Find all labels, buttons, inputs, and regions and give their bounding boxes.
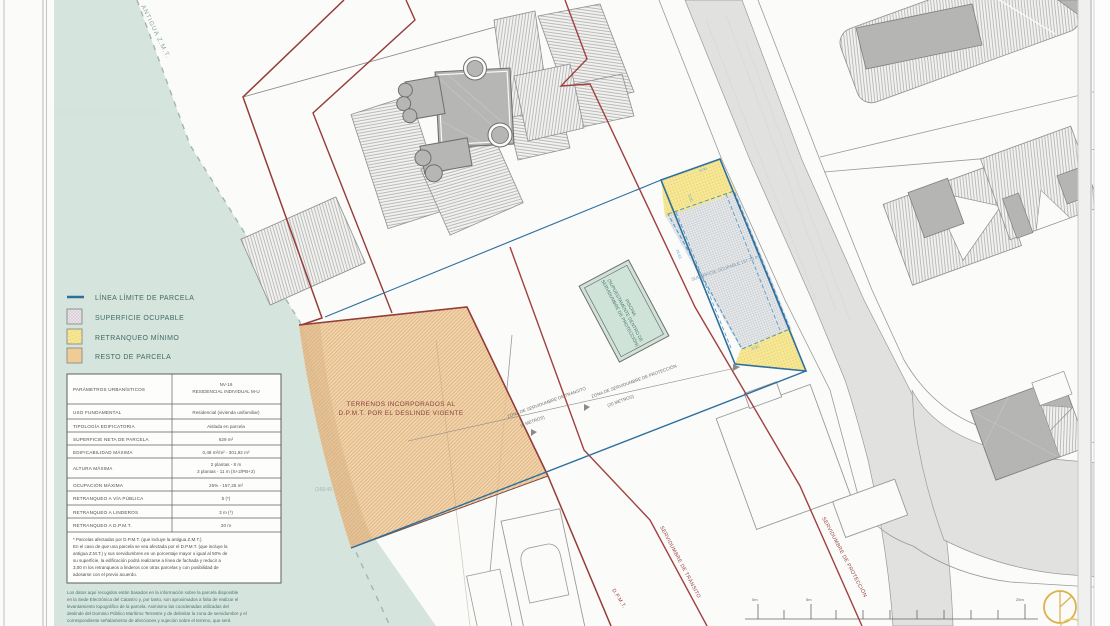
svg-text:D.P.M.T. POR EL DESLINDE VIGEN: D.P.M.T. POR EL DESLINDE VIGENTE [338, 410, 463, 417]
svg-text:Residencial (vivienda unifamil: Residencial (vivienda unifamiliar) [192, 410, 260, 415]
svg-text:levantamiento topográfico de l: levantamiento topográfico de la parcela.… [67, 604, 229, 609]
svg-text:EDIFICABILIDAD MÁXIMA: EDIFICABILIDAD MÁXIMA [73, 449, 133, 455]
svg-text:0m: 0m [752, 597, 758, 602]
svg-text:TERRENOS INCORPORADOS AL: TERRENOS INCORPORADOS AL [347, 401, 456, 408]
svg-text:5m: 5m [806, 597, 812, 602]
svg-text:Los datos aquí recogidos están: Los datos aquí recogidos están basados e… [67, 590, 239, 595]
svg-text:adosarse con el previo acuerdo: adosarse con el previo acuerdo. [73, 572, 137, 577]
svg-text:25m: 25m [1016, 597, 1024, 602]
svg-text:RESTO DE PARCELA: RESTO DE PARCELA [95, 354, 171, 361]
svg-text:USO FUNDAMENTAL: USO FUNDAMENTAL [73, 410, 122, 415]
svg-text:RETRANQUEO A D.P.M.T.: RETRANQUEO A D.P.M.T. [73, 523, 132, 528]
svg-text:RETRANQUEO A VÍA PÚBLICA: RETRANQUEO A VÍA PÚBLICA [73, 495, 144, 501]
svg-text:NV-16: NV-16 [220, 382, 233, 387]
svg-text:3,00 m los retranqueos a linde: 3,00 m los retranqueos a linderos con ot… [73, 565, 219, 570]
svg-text:RETRANQUEO MÍNIMO: RETRANQUEO MÍNIMO [95, 333, 179, 342]
svg-text:20 m: 20 m [221, 523, 231, 528]
svg-text:en la Sede Electrónica del Cat: en la Sede Electrónica del Catastro y, p… [67, 597, 238, 602]
svg-text:En el caso de que una parcela: En el caso de que una parcela se vea afe… [73, 544, 228, 549]
svg-text:ALTURA MÁXIMA: ALTURA MÁXIMA [73, 465, 113, 471]
svg-text:2 plantas - 8 m: 2 plantas - 8 m [211, 462, 242, 467]
svg-text:deslinde del Dominio Público M: deslinde del Dominio Público Marítimo Te… [67, 611, 247, 616]
svg-text:* Parcelas afectadas por D.P.M: * Parcelas afectadas por D.P.M.T. (que i… [73, 537, 202, 542]
svg-text:Aislada en parcela: Aislada en parcela [207, 424, 245, 429]
svg-text:RESIDENCIAL INDIVIDUAL M-U: RESIDENCIAL INDIVIDUAL M-U [192, 389, 259, 394]
svg-text:OCUPACIÓN MÁXIMA: OCUPACIÓN MÁXIMA [73, 482, 124, 488]
svg-text:5 (*): 5 (*) [222, 496, 231, 501]
svg-text:0,48 m²/m² - 301,92 m²: 0,48 m²/m² - 301,92 m² [203, 450, 250, 455]
svg-text:629 m²: 629 m² [219, 437, 234, 442]
svg-text:3 plantas - 11 m (S+2/PB+2): 3 plantas - 11 m (S+2/PB+2) [197, 469, 255, 474]
svg-text:su superficie, la edificación: su superficie, la edificación podrá real… [73, 558, 221, 563]
svg-text:SUPERFICIE OCUPABLE: SUPERFICIE OCUPABLE [95, 315, 184, 322]
svg-text:LÍNEA LÍMITE DE PARCELA: LÍNEA LÍMITE DE PARCELA [95, 293, 194, 302]
svg-text:3 m (*): 3 m (*) [219, 510, 233, 515]
svg-text:antigua Z.M.T.) y sus servidum: antigua Z.M.T.) y sus servidumbres en un… [73, 551, 228, 556]
svg-text:correspondiente señalamiento d: correspondiente señalamiento de afeccion… [67, 618, 231, 623]
svg-text:PARÁMETROS URBANÍSTICOS: PARÁMETROS URBANÍSTICOS [73, 386, 145, 392]
svg-text:SUPERFICIE NETA DE PARCELA: SUPERFICIE NETA DE PARCELA [73, 437, 149, 442]
svg-text:TIPOLOGÍA EDIFICATORIA: TIPOLOGÍA EDIFICATORIA [73, 423, 136, 429]
svg-text:25% - 157,25 m²: 25% - 157,25 m² [209, 483, 243, 488]
svg-text:RETRANQUEO A LINDEROS: RETRANQUEO A LINDEROS [73, 510, 138, 515]
